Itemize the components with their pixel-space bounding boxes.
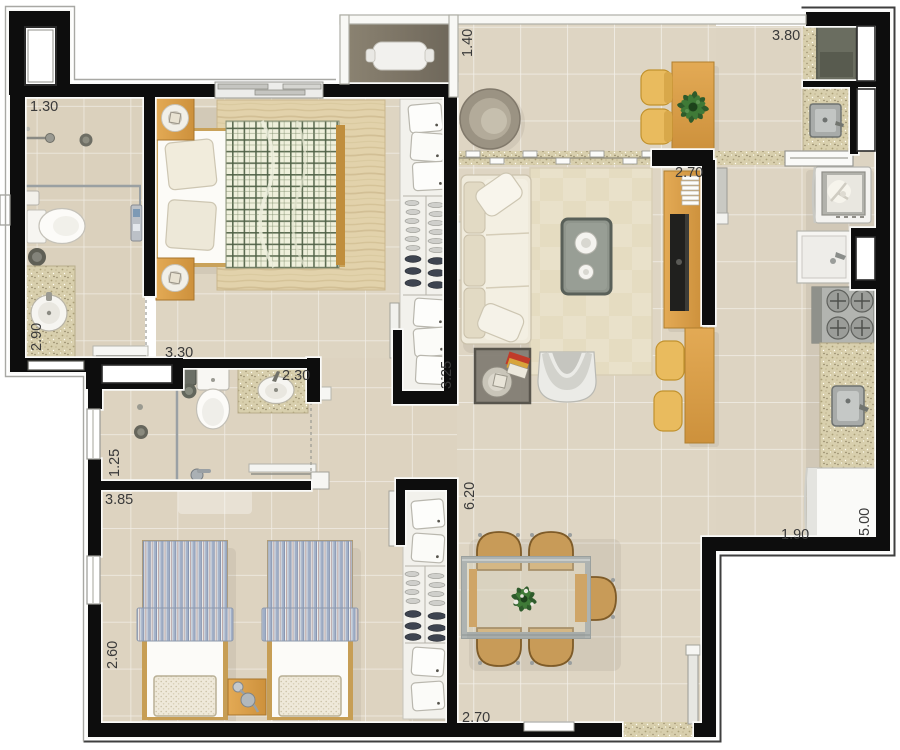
svg-text:3.80: 3.80 xyxy=(772,28,800,44)
svg-text:3.30: 3.30 xyxy=(165,345,193,361)
svg-text:6.20: 6.20 xyxy=(462,482,478,510)
svg-text:3.25: 3.25 xyxy=(439,361,455,389)
svg-text:1.30: 1.30 xyxy=(30,99,58,115)
svg-text:1.90: 1.90 xyxy=(781,527,809,543)
svg-text:3.85: 3.85 xyxy=(105,492,133,508)
svg-text:2.30: 2.30 xyxy=(282,368,310,384)
svg-text:2.70: 2.70 xyxy=(462,710,490,726)
svg-text:2.90: 2.90 xyxy=(29,323,45,351)
svg-text:5.00: 5.00 xyxy=(857,508,873,536)
svg-text:2.60: 2.60 xyxy=(105,641,121,669)
svg-text:2.70: 2.70 xyxy=(675,165,703,181)
svg-text:1.40: 1.40 xyxy=(460,29,476,57)
svg-text:1.25: 1.25 xyxy=(107,449,123,477)
